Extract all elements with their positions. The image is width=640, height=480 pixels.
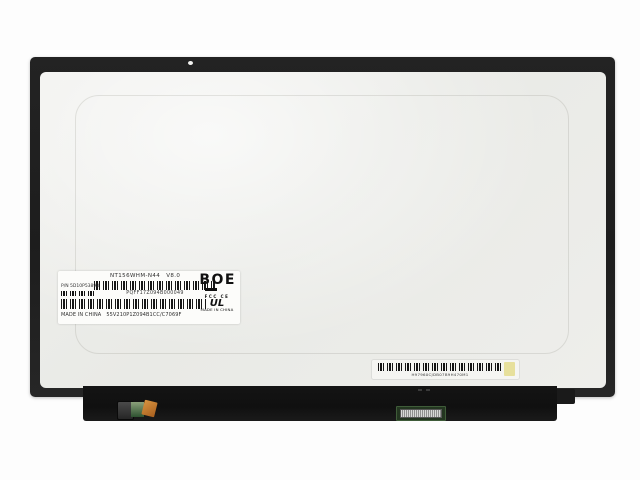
edp-connector <box>396 406 446 421</box>
model-number: NT156WHM-N44 <box>110 273 160 279</box>
serial-text: 55V210P1Z094B1CC/C7069F <box>106 312 181 318</box>
part-number-block: P/N 5D10P53898 <box>61 284 99 296</box>
origin-serial-line: MADE IN CHINA55V210P1Z094B1CC/C7069F <box>61 312 211 318</box>
model-version: V8.0 <box>166 273 180 279</box>
label-barcode-bottom <box>61 299 207 309</box>
bezel-dot <box>188 61 193 65</box>
panel-back-cover <box>40 72 606 388</box>
panel-frame <box>30 57 615 397</box>
info-label: NT156WHM-N44V8.0 PQFF17Z094B000049 P/N 5… <box>58 271 240 324</box>
origin-text: MADE IN CHINA <box>61 312 101 318</box>
certification-marks: FCC CE UL MADE IN CHINA <box>196 294 238 313</box>
part-number-mini-barcode <box>61 291 95 296</box>
boe-logo: BOE <box>199 274 236 287</box>
boe-logo-underline <box>205 288 217 291</box>
part-number-line: P/N 5D10P53898 <box>61 284 99 290</box>
part-number-label: P/N <box>61 284 69 289</box>
serial-sticker-yellow-tab <box>504 362 515 376</box>
serial-sticker-code: H97960CJDB07B9H470M1 <box>378 372 502 377</box>
left-flex-connector <box>117 399 161 420</box>
pcb-testpoints <box>418 389 430 391</box>
serial-sticker-barcode <box>378 363 502 371</box>
lcd-panel-product-photo: NT156WHM-N44V8.0 PQFF17Z094B000049 P/N 5… <box>0 0 640 480</box>
part-number-value: 5D10P53898 <box>70 284 99 289</box>
label-barcode-top <box>94 281 216 290</box>
origin-small-text: MADE IN CHINA <box>196 308 238 313</box>
driver-board-right-tab <box>557 389 575 404</box>
connector-flex-cable <box>141 400 157 418</box>
serial-barcode-sticker: H97960CJDB07B9H470M1 <box>372 360 519 379</box>
edp-connector-pins <box>400 409 442 418</box>
